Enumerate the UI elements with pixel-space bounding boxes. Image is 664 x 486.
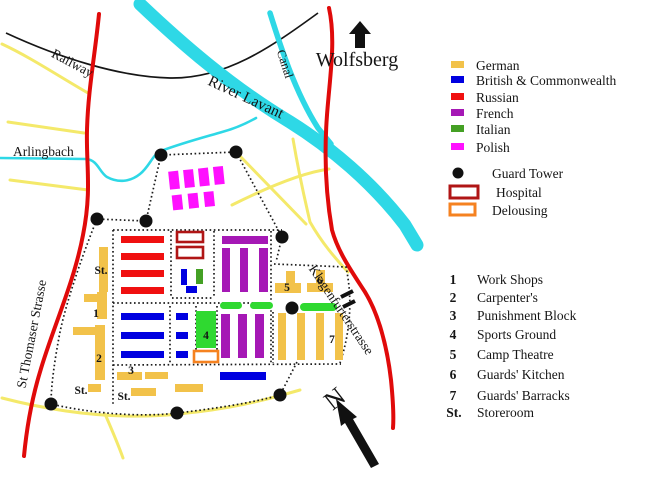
barracks-french [259,248,268,292]
waterways [0,4,417,245]
guard-tower-icon [171,407,184,420]
building-italian [196,269,203,284]
barracks-russian [121,253,164,260]
key-num: 7 [450,388,457,403]
key-num: 1 [450,272,457,287]
minor-roads [2,44,348,458]
legend-label: Guard Tower [492,166,564,181]
key-label: Guards' Kitchen [477,367,565,382]
key-num: 2 [450,290,457,305]
road-klagenfurter [326,8,394,428]
legend-label: German [476,58,520,73]
yellow-road [105,414,123,458]
label-arlingbach: Arlingbach [13,144,74,159]
legend-swatch-german [451,61,464,68]
legend-swatch-italian [451,125,464,132]
barracks-french [222,236,268,244]
russian-barracks [121,236,164,294]
barracks-polish [213,166,225,185]
guards-barracks-building [278,313,286,360]
barracks-german [84,294,97,302]
legend-swatch-british [451,76,464,83]
key-label: Storeroom [477,405,534,420]
barracks-russian [121,236,164,243]
storeroom-building [131,388,156,396]
label-canal: Canal [274,48,296,81]
barracks-french [222,248,230,292]
key-label: Carpenter's [477,290,538,305]
building-italian [250,302,273,309]
barracks-polish [188,193,200,209]
marker-6-guards-kitchen: 6 [317,275,323,287]
key-num: 5 [450,347,457,362]
guard-tower-icon [286,302,299,315]
key-label: Camp Theatre [477,347,554,362]
yellow-road [238,154,306,224]
hospital-building [177,247,203,258]
barracks-polish [168,171,180,190]
barracks-french [240,248,248,292]
label-st-thomaser-strasse: St Thomaser Strasse [14,278,50,389]
legend-delousing-icon [450,204,475,215]
barracks-british [176,351,188,358]
legend-label: Polish [476,140,510,155]
legend-swatch-french [451,109,464,116]
barracks-german [175,384,203,392]
legend-label: French [476,106,514,121]
barracks-polish [203,191,215,207]
barracks-british [176,332,188,339]
key-num: 4 [450,327,457,342]
barracks-french [221,314,230,358]
key-num: St. [446,405,461,420]
yellow-road [8,122,84,133]
barracks-polish [198,168,210,187]
legend: German British & Commonwealth Russian Fr… [450,58,616,218]
guard-tower-icon [230,146,243,159]
key-num: 6 [450,367,457,382]
barracks-british [181,269,187,285]
french-barracks [221,236,268,358]
barracks-german [145,372,168,379]
label-river-lavant: River Lavant [205,73,287,123]
marker-7-guards-barracks: 7 [329,334,335,346]
legend-label: Russian [476,90,519,105]
hospital-building [177,232,203,242]
barracks-german [73,327,95,335]
storeroom-building [88,384,101,392]
legend-guard-tower-icon [453,168,464,179]
marker-4-sports-ground: 4 [203,330,209,342]
yellow-road [10,180,88,190]
wolfsberg-arrow-icon [349,21,371,48]
legend-label: Italian [476,122,511,137]
guard-tower-icon [276,231,289,244]
legend-hospital-icon [450,186,478,198]
barracks-british [121,332,164,339]
marker-3-punishment-block: 3 [128,365,134,377]
marker-1-workshops: 1 [93,308,99,320]
stalag-camp-map: Railway Arlingbach St Thomaser Strasse R… [0,0,664,486]
marker-5-camp-theatre: 5 [284,282,290,294]
marker-storeroom: St. [94,265,107,277]
barracks-british [121,313,164,320]
key-label: Sports Ground [477,327,556,342]
barracks-british [186,286,197,293]
guard-tower-icon [45,398,58,411]
guard-tower-icon [274,389,287,402]
key-label: Work Shops [477,272,543,287]
barracks-british [121,351,164,358]
delousing-building [194,351,218,362]
label-wolfsberg: Wolfsberg [316,49,398,71]
legend-label: British & Commonwealth [476,73,616,88]
barracks-russian [121,287,164,294]
barracks-british [176,313,188,320]
barracks-french [255,314,264,358]
barracks-british [220,372,266,380]
hospital-buildings [177,232,203,258]
guards-barracks-building [316,313,324,360]
marker-storeroom: St. [74,385,87,397]
marker-storeroom: St. [117,391,130,403]
legend-label: Delousing [492,203,548,218]
barracks-russian [121,270,164,277]
guards-barracks-building [297,313,305,360]
legend-swatch-polish [451,143,464,150]
key-num: 3 [450,308,457,323]
guard-tower-icon [140,215,153,228]
barracks-polish [172,194,184,210]
guard-tower-icon [91,213,104,226]
legend-swatch-russian [451,93,464,100]
legend-label: Hospital [496,185,542,200]
guard-tower-icon [155,149,168,162]
marker-2-carpenters: 2 [96,353,102,365]
key-label: Guards' Barracks [477,388,570,403]
road-st-thomaser [24,14,99,456]
key-label: Punishment Block [477,308,577,323]
barracks-polish [183,169,195,188]
polish-barracks [168,166,227,211]
camp-map-page: Railway Arlingbach St Thomaser Strasse R… [0,0,664,486]
building-italian [220,302,242,309]
barracks-french [238,314,247,358]
key-list: 1 Work Shops 2 Carpenter's 3 Punishment … [446,272,576,420]
